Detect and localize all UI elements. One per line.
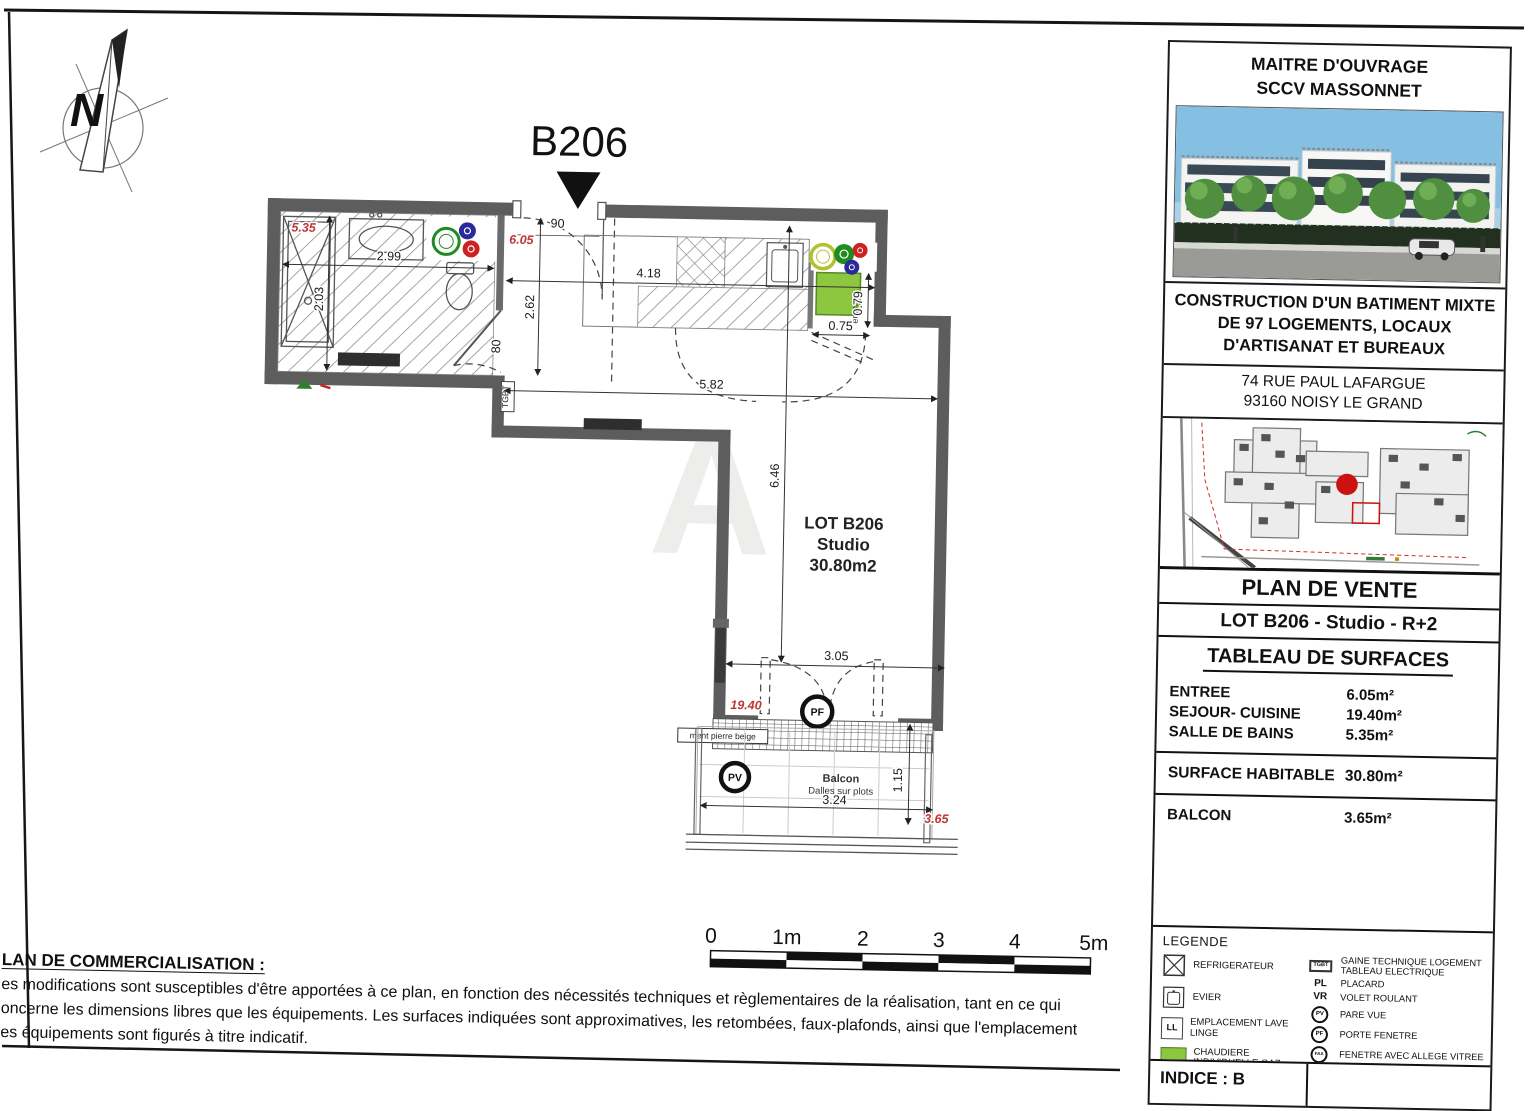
surface-row-entree: ENTREE 6.05m²: [1169, 683, 1485, 706]
dim-balcon-depth: 1.15: [891, 768, 905, 793]
legend-label: GAINE TECHNIQUE LOGEMENT TABLEAU ELECTRI…: [1341, 956, 1487, 978]
scale-label-1: 1m: [772, 926, 802, 950]
surface-row-sdb: SALLE DE BAINS 5.35m²: [1169, 723, 1485, 746]
window-head: [713, 619, 729, 628]
surface-label: BALCON: [1167, 806, 1344, 826]
divider: [1156, 751, 1496, 760]
radiator: [338, 352, 400, 366]
project-address: 74 RUE PAUL LAFARGUE 93160 NOISY LE GRAN…: [1163, 363, 1504, 423]
dim-sejour-height: 6.46: [768, 463, 782, 488]
surface-row-sejour: SEJOUR- CUISINE 19.40m²: [1169, 703, 1485, 726]
scale-label-3: 3: [933, 929, 945, 952]
kitchen-sink: [766, 243, 803, 288]
door-leaf: [873, 660, 883, 716]
porte-fenetre-icon: PF: [1311, 1026, 1328, 1043]
legend-item-porte-fenetre: PF PORTE FENETRE: [1304, 1026, 1485, 1046]
title-block: MAITRE D'OUVRAGE SCCV MASSONNET: [1148, 40, 1512, 1111]
dim-bath-door: 80: [489, 339, 503, 353]
door-jamb: [513, 201, 521, 218]
project-title: CONSTRUCTION D'UN BATIMENT MIXTE DE 97 L…: [1164, 281, 1505, 369]
dim-sejour-area: 19.40: [730, 698, 762, 713]
legend-label: PARE VUE: [1340, 1010, 1387, 1021]
room-label-line3: 30.80m2: [809, 555, 876, 575]
scale-label-5: 5m: [1079, 932, 1109, 956]
dim-ll-depth: 0.79: [851, 291, 865, 316]
revision-cell: [1306, 1064, 1490, 1110]
surface-table: TABLEAU DE SURFACES ENTREE 6.05m² SEJOUR…: [1153, 635, 1499, 931]
revision-row: INDICE : B: [1150, 1059, 1491, 1110]
radiator: [584, 418, 642, 430]
scale-label-4: 4: [1009, 930, 1021, 953]
surface-label: SALLE DE BAINS: [1169, 723, 1346, 743]
legend-item-tgbt: TGBT GAINE TECHNIQUE LOGEMENT TABLEAU EL…: [1306, 956, 1487, 979]
tgbt-icon: TGBT: [1309, 960, 1332, 972]
entry: TGBT: [500, 217, 646, 431]
surface-value: 19.40m²: [1346, 706, 1402, 724]
legend-label: PLACARD: [1340, 979, 1384, 990]
tgbt-label: TGBT: [500, 385, 510, 408]
surface-label: SURFACE HABITABLE: [1168, 764, 1345, 785]
dim-balcon-width: 3.24: [822, 793, 847, 807]
balcony-label: Balcon: [822, 773, 859, 786]
divider: [1156, 793, 1496, 802]
apartment-plan: A B206: [253, 112, 1124, 974]
dim-entree-area: 6.05: [509, 233, 535, 247]
surface-value: 6.05m²: [1346, 686, 1394, 704]
indice-label: INDICE : B: [1150, 1061, 1307, 1106]
owner-line2: SCCV MASSONNET: [1173, 75, 1505, 105]
pf-symbol: PF: [802, 696, 833, 727]
legend-label: EMPLACEMENT LAVE LINGE: [1190, 1018, 1305, 1041]
building-photo: [1165, 105, 1508, 287]
surface-label: ENTREE: [1169, 683, 1346, 703]
fenetre-allege-icon: FAA: [1310, 1046, 1327, 1063]
surface-value: 5.35m²: [1345, 726, 1393, 744]
owner-header: MAITRE D'OUVRAGE SCCV MASSONNET: [1169, 42, 1510, 112]
legend-item-lave-linge: LL EMPLACEMENT LAVE LINGE: [1161, 1017, 1305, 1042]
placard-abbr: PL: [1305, 978, 1335, 989]
window: [715, 627, 726, 683]
sink-icon: [1161, 985, 1185, 1009]
dim-bath-width: 2.99: [377, 249, 402, 263]
north-arrow: N: [40, 30, 168, 192]
dim-entry-door: 90: [550, 216, 564, 230]
plan-sheet: N A B206: [0, 0, 1528, 1080]
volet-abbr: VR: [1305, 992, 1335, 1003]
surface-row-balcon: BALCON 3.65m²: [1167, 806, 1483, 829]
dim-balcon-area: 3.65: [924, 812, 950, 826]
unit-label: B206: [530, 117, 629, 166]
legend-item-placard: PL PLACARD: [1305, 978, 1486, 992]
legend-item-volet: VR VOLET ROULANT: [1305, 992, 1486, 1006]
north-letter: N: [70, 84, 104, 136]
room-label-line2: Studio: [817, 535, 870, 555]
material-tag-label: ment pierre beige: [690, 730, 757, 741]
site-map: [1160, 416, 1503, 572]
pf-symbol-label: PF: [810, 707, 824, 719]
pv-symbol-label: PV: [728, 772, 742, 784]
dim-bath-area: 5.35: [291, 220, 317, 234]
watermark-letter: A: [648, 399, 774, 591]
dim-bay-width: 3.05: [824, 649, 849, 663]
legend-label: EVIER: [1193, 992, 1222, 1003]
room-label-line1: LOT B206: [804, 513, 884, 534]
legend-label: REFRIGERATEUR: [1193, 960, 1274, 972]
dim-sejour-width: 5.82: [699, 377, 724, 391]
pv-symbol: PV: [721, 763, 750, 792]
pare-vue-icon: PV: [1311, 1006, 1328, 1023]
scale-label-2: 2: [857, 927, 869, 950]
legend-item-refrigerateur: REFRIGERATEUR: [1162, 953, 1306, 980]
legend-label: PORTE FENETRE: [1339, 1030, 1417, 1041]
unit-pointer-icon: [556, 172, 601, 210]
washing-machine-icon: LL: [1161, 1017, 1183, 1039]
building-render-image: [1172, 105, 1503, 283]
legend-label: FENETRE AVEC ALLEGE VITREE: [1339, 1050, 1484, 1063]
scale-label-0: 0: [705, 925, 717, 948]
surface-row-habitable: SURFACE HABITABLE 30.80m²: [1168, 764, 1484, 788]
dim-bath-depth: 2.03: [312, 287, 326, 312]
dim-kitchen-width: 4.18: [636, 266, 661, 280]
legend-item-evier: EVIER: [1161, 985, 1305, 1012]
surface-table-title: TABLEAU DE SURFACES: [1203, 645, 1453, 677]
boiler-closet: empl. LL: [807, 262, 877, 363]
surface-value: 3.65m²: [1344, 809, 1392, 827]
legend: LEGENDE REFRIGERATEUR EVIER: [1150, 925, 1493, 1066]
surface-label: SEJOUR- CUISINE: [1169, 703, 1346, 723]
refrigerator-icon: [1162, 953, 1186, 977]
dim-ll-width: 0.75: [828, 319, 853, 333]
legend-title: LEGENDE: [1163, 933, 1487, 954]
site-map-image: [1160, 418, 1503, 572]
door-leaf: [760, 658, 770, 714]
dim-entree-depth: 2.62: [523, 295, 537, 320]
surface-value: 30.80m²: [1345, 767, 1403, 786]
legend-item-pare-vue: PV PARE VUE: [1305, 1006, 1486, 1026]
door-jamb: [598, 202, 606, 219]
legend-label: VOLET ROULANT: [1340, 993, 1418, 1004]
